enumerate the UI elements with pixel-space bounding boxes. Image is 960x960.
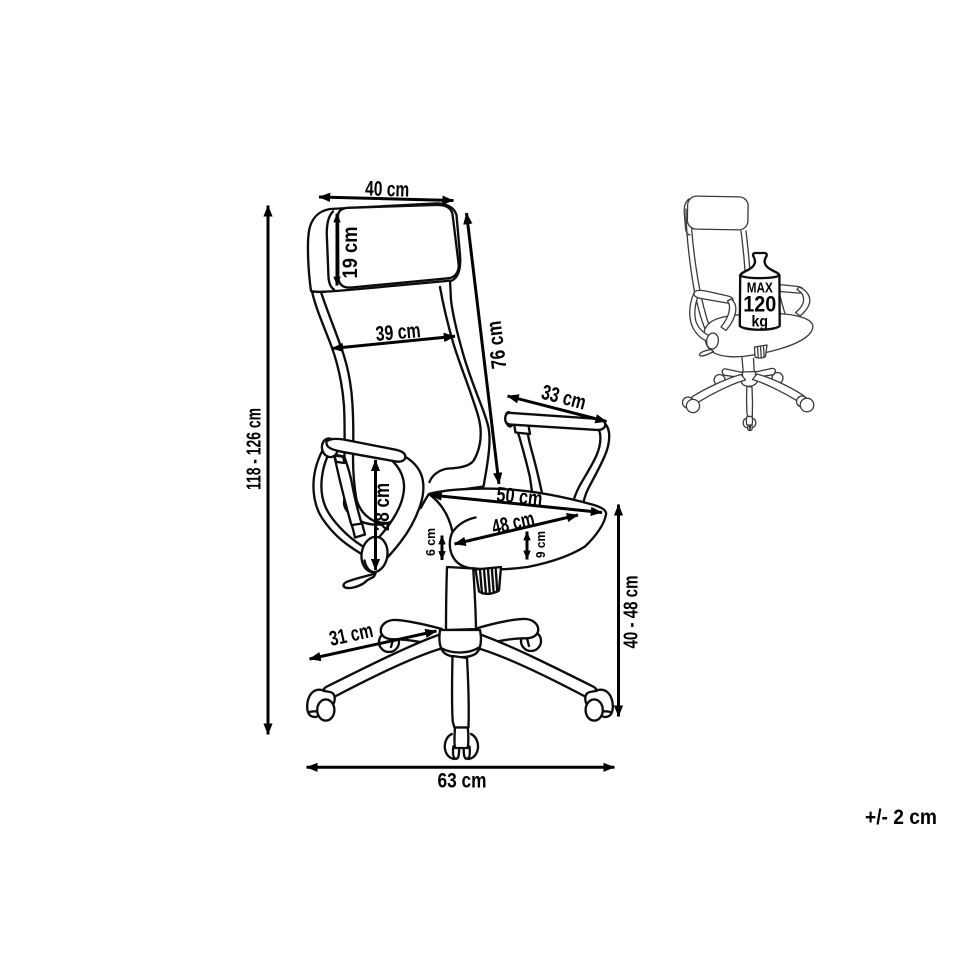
svg-text:39 cm: 39 cm xyxy=(375,319,422,346)
svg-text:kg: kg xyxy=(752,314,769,331)
svg-text:40 cm: 40 cm xyxy=(365,177,410,201)
svg-text:+/- 2 cm: +/- 2 cm xyxy=(865,806,937,829)
svg-text:40 - 48 cm: 40 - 48 cm xyxy=(621,576,643,649)
svg-text:118 - 126 cm: 118 - 126 cm xyxy=(244,408,266,490)
svg-text:9 cm: 9 cm xyxy=(533,531,548,558)
svg-text:63 cm: 63 cm xyxy=(438,770,487,793)
svg-text:33 cm: 33 cm xyxy=(539,381,588,415)
svg-text:6 cm: 6 cm xyxy=(423,528,438,556)
svg-text:19 cm: 19 cm xyxy=(339,227,362,279)
svg-text:28 cm: 28 cm xyxy=(371,483,394,531)
svg-text:76 cm: 76 cm xyxy=(483,320,512,370)
svg-text:50 cm: 50 cm xyxy=(495,483,543,511)
